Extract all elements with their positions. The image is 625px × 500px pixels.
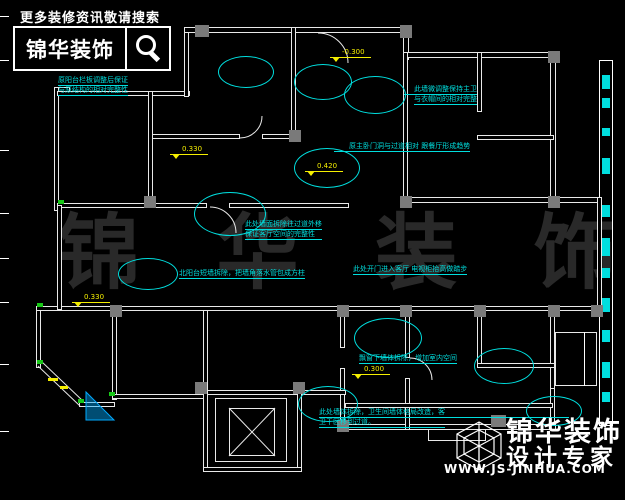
search-logo-box[interactable]: 锦华装饰 [13, 26, 171, 71]
revision-bubble [344, 76, 406, 114]
annotation-line: 原主卧门洞与过道相对 跟餐厅形成趋势 [349, 142, 470, 152]
ramp-symbol [86, 392, 114, 420]
annotation-bathroom: 此处墙体拆除，卫生间墙体格局改造，客 卫干区移到过道。 [319, 408, 445, 428]
level-marker: 0.330 [72, 293, 110, 303]
annotation-line: 此处墙体拆除，卫生间墙体格局改造，客 [319, 408, 445, 418]
annotation-line: 卫干区移到过道。 [319, 418, 445, 428]
yellow-mark [48, 378, 58, 381]
annotation-doorway: 原主卧门洞与过道相对 跟餐厅形成趋势 [349, 142, 470, 152]
level-triangle-icon [172, 154, 180, 159]
magnifier-handle [149, 51, 160, 62]
level-value: 0.330 [182, 145, 202, 153]
green-mark [37, 303, 43, 307]
green-mark [58, 200, 64, 204]
level-marker: 0.330 [170, 145, 208, 155]
level-triangle-icon [354, 374, 362, 379]
annotation-line: 北阳台短墙拆除，把墙角落水管包成方柱 [179, 269, 305, 279]
green-mark [109, 392, 115, 396]
level-triangle-icon [74, 302, 82, 307]
level-triangle-icon [332, 57, 340, 62]
revision-bubble [474, 348, 534, 384]
green-mark [78, 399, 84, 403]
cad-floorplan-screenshot: 锦 华 装 饰 [0, 0, 625, 500]
annotation-line: 保证客厅空间的完整性 [245, 230, 322, 240]
annotation-master-bath: 此墙微调整保持主卫 与衣帽间的相对完整 [414, 85, 477, 105]
yellow-mark [60, 386, 68, 389]
brand-name: 锦华装饰 [15, 28, 125, 69]
annotation-balcony: 原阳台栏板调整后保证 与原结构的相对完整性 [58, 76, 128, 96]
footer-website[interactable]: WWW.JS-JINHUA.COM [444, 462, 606, 476]
revision-bubble [218, 56, 274, 88]
annotation-north-balcony: 北阳台短墙拆除，把墙角落水管包成方柱 [179, 269, 305, 279]
annotation-line: 飘窗下墙体拆除，增加室内空间 [359, 354, 457, 364]
annotation-line: 此处墙面拆除往过道外移 [245, 220, 322, 230]
annotation-line: 此处开门进入客厅 电视柜抬高做踏步 [353, 265, 467, 275]
annotation-wall-move: 此处墙面拆除往过道外移 保证客厅空间的完整性 [245, 220, 322, 240]
revision-bubble [118, 258, 178, 290]
level-value: 0.300 [364, 365, 384, 373]
level-marker: 0.300 [352, 365, 390, 375]
annotation-line: 与原结构的相对完整性 [58, 86, 128, 96]
revision-bubble [354, 318, 422, 358]
annotation-line: 此墙微调整保持主卫 [414, 85, 477, 95]
level-value: -0.300 [342, 48, 365, 56]
level-value: 0.420 [317, 162, 337, 170]
annotation-line: 与衣帽间的相对完整 [414, 95, 477, 105]
green-mark [37, 360, 43, 364]
level-triangle-icon [307, 171, 315, 176]
annotation-entry: 此处开门进入客厅 电视柜抬高做踏步 [353, 265, 467, 275]
annotation-line: 原阳台栏板调整后保证 [58, 76, 128, 86]
leader-line [404, 94, 414, 95]
annotation-bay-window: 飘窗下墙体拆除，增加室内空间 [359, 354, 457, 364]
leader-line [334, 151, 350, 152]
header-tagline: 更多装修资讯敬请搜索 [20, 7, 160, 26]
search-icon[interactable] [125, 28, 169, 69]
level-marker: -0.300 [330, 48, 371, 58]
level-marker: 0.420 [305, 162, 343, 172]
level-value: 0.330 [84, 293, 104, 301]
